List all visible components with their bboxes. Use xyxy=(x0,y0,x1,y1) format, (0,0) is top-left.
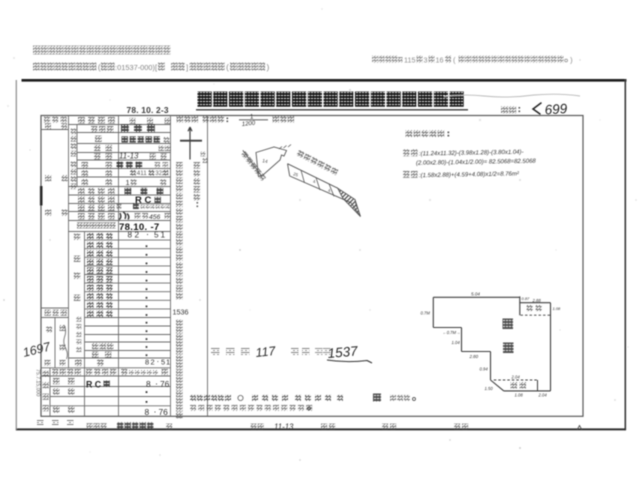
svg-text:76: 76 xyxy=(160,379,170,389)
svg-text:411: 411 xyxy=(137,170,147,177)
svg-text:0.7M: 0.7M xyxy=(421,311,431,316)
svg-text:75.7.15,000: 75.7.15,000 xyxy=(35,369,41,397)
svg-text:2.04: 2.04 xyxy=(538,392,548,397)
svg-text:115: 115 xyxy=(404,56,415,65)
svg-text:0.94: 0.94 xyxy=(480,366,489,371)
svg-text:R C: R C xyxy=(86,380,102,390)
svg-text:8: 8 xyxy=(146,379,151,389)
svg-text:456: 456 xyxy=(149,214,161,221)
svg-text:2: 2 xyxy=(135,231,140,240)
svg-text:5.04: 5.04 xyxy=(471,292,480,297)
svg-text:1.04: 1.04 xyxy=(452,340,461,345)
svg-text:8: 8 xyxy=(128,231,133,240)
svg-text:2.04: 2.04 xyxy=(511,375,521,380)
svg-text:78. 10. 2-3: 78. 10. 2-3 xyxy=(127,105,169,115)
svg-text:2.88: 2.88 xyxy=(532,298,542,303)
svg-text:3: 3 xyxy=(424,56,428,65)
svg-text:2.80: 2.80 xyxy=(469,354,479,359)
svg-text:(: ( xyxy=(98,63,101,72)
svg-text:): ) xyxy=(267,63,270,72)
svg-text:32: 32 xyxy=(155,170,162,177)
svg-text:1.50: 1.50 xyxy=(485,386,494,391)
svg-text:8: 8 xyxy=(145,407,150,417)
svg-text:1.08: 1.08 xyxy=(553,306,562,311)
svg-text:(: ( xyxy=(226,63,229,72)
svg-text::01537-000)[: :01537-000)[ xyxy=(115,63,157,72)
svg-text:]: ] xyxy=(186,63,188,72)
svg-text:5: 5 xyxy=(154,231,159,240)
svg-text:76: 76 xyxy=(159,407,169,417)
svg-text:1: 1 xyxy=(161,231,166,240)
svg-text:5: 5 xyxy=(161,357,165,366)
svg-text:0.87: 0.87 xyxy=(522,296,531,301)
svg-text:1536: 1536 xyxy=(173,308,189,317)
svg-text:·: · xyxy=(157,357,160,366)
svg-text:·: · xyxy=(155,378,158,388)
svg-text:8: 8 xyxy=(145,357,149,366)
svg-text:2: 2 xyxy=(151,357,155,366)
svg-text:←0.7M→: ←0.7M→ xyxy=(443,330,461,335)
svg-text:1.08: 1.08 xyxy=(515,393,524,398)
svg-text:1537: 1537 xyxy=(327,343,359,361)
svg-text:1: 1 xyxy=(166,357,170,366)
svg-text:·: · xyxy=(146,229,149,239)
svg-text:117: 117 xyxy=(255,344,277,360)
svg-text:11-13: 11-13 xyxy=(274,422,294,431)
svg-text:11-13: 11-13 xyxy=(119,152,139,161)
svg-text:·: · xyxy=(154,407,157,417)
svg-text:1: 1 xyxy=(126,178,130,187)
svg-text:16: 16 xyxy=(436,56,444,65)
